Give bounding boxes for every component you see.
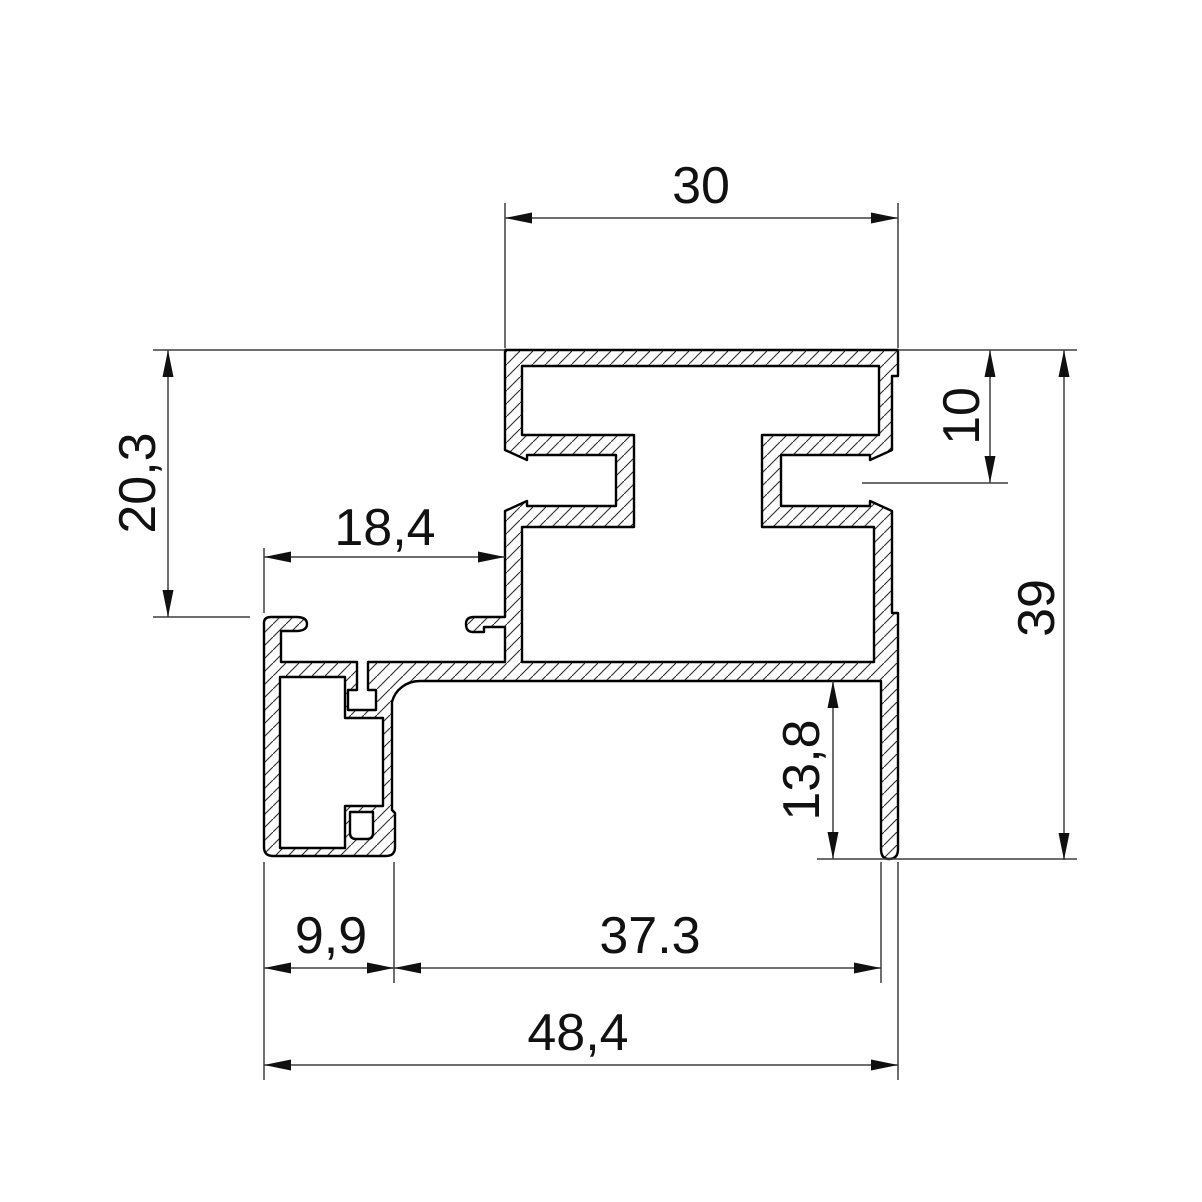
dim-label-10: 10 bbox=[933, 387, 991, 445]
arrowhead-up bbox=[985, 350, 996, 377]
arrowhead-left bbox=[505, 213, 532, 224]
dimension-web-width: 37.3 bbox=[394, 907, 881, 974]
arrowhead-right bbox=[871, 213, 898, 224]
arrowhead-down bbox=[828, 832, 839, 859]
dim-label-39: 39 bbox=[1008, 579, 1066, 637]
arrowhead-left bbox=[264, 1060, 291, 1071]
arrowhead-left bbox=[264, 552, 291, 563]
dim-label-30: 30 bbox=[672, 157, 730, 215]
dimension-groove-depth: 10 bbox=[933, 350, 996, 483]
arrowhead-right bbox=[871, 1060, 898, 1071]
arrowhead-right bbox=[367, 963, 394, 974]
dimension-overall-height: 39 bbox=[1008, 350, 1070, 860]
dimension-rebate-width: 18,4 bbox=[264, 499, 505, 563]
arrowhead-left bbox=[394, 963, 421, 974]
dim-label-48-4: 48,4 bbox=[527, 1004, 628, 1062]
arrowhead-down bbox=[1059, 833, 1070, 860]
dim-label-18-4: 18,4 bbox=[334, 499, 435, 557]
dimension-fin-height: 13,8 bbox=[773, 681, 839, 859]
dim-label-13-8: 13,8 bbox=[773, 719, 831, 820]
arrowhead-right bbox=[854, 963, 881, 974]
arrowhead-up bbox=[828, 681, 839, 708]
arrowhead-down bbox=[163, 590, 174, 617]
arrowhead-right bbox=[478, 552, 505, 563]
dimension-total-width: 48,4 bbox=[264, 1004, 898, 1071]
drawing-canvas: 30 20,3 18,4 10 39 13,8 9, bbox=[0, 0, 1202, 1202]
dimension-upper-left-height: 20,3 bbox=[109, 350, 174, 617]
profile-drawing: 30 20,3 18,4 10 39 13,8 9, bbox=[0, 0, 1202, 1202]
dim-label-9-9: 9,9 bbox=[295, 907, 367, 965]
dim-label-20-3: 20,3 bbox=[109, 432, 167, 533]
dimension-top-width: 30 bbox=[505, 157, 898, 224]
arrowhead-up bbox=[1059, 350, 1070, 377]
arrowhead-up bbox=[163, 350, 174, 377]
arrowhead-left bbox=[264, 963, 291, 974]
dimension-box-width: 9,9 bbox=[264, 907, 394, 974]
dim-label-37-3: 37.3 bbox=[599, 907, 700, 965]
arrowhead-down bbox=[985, 456, 996, 483]
